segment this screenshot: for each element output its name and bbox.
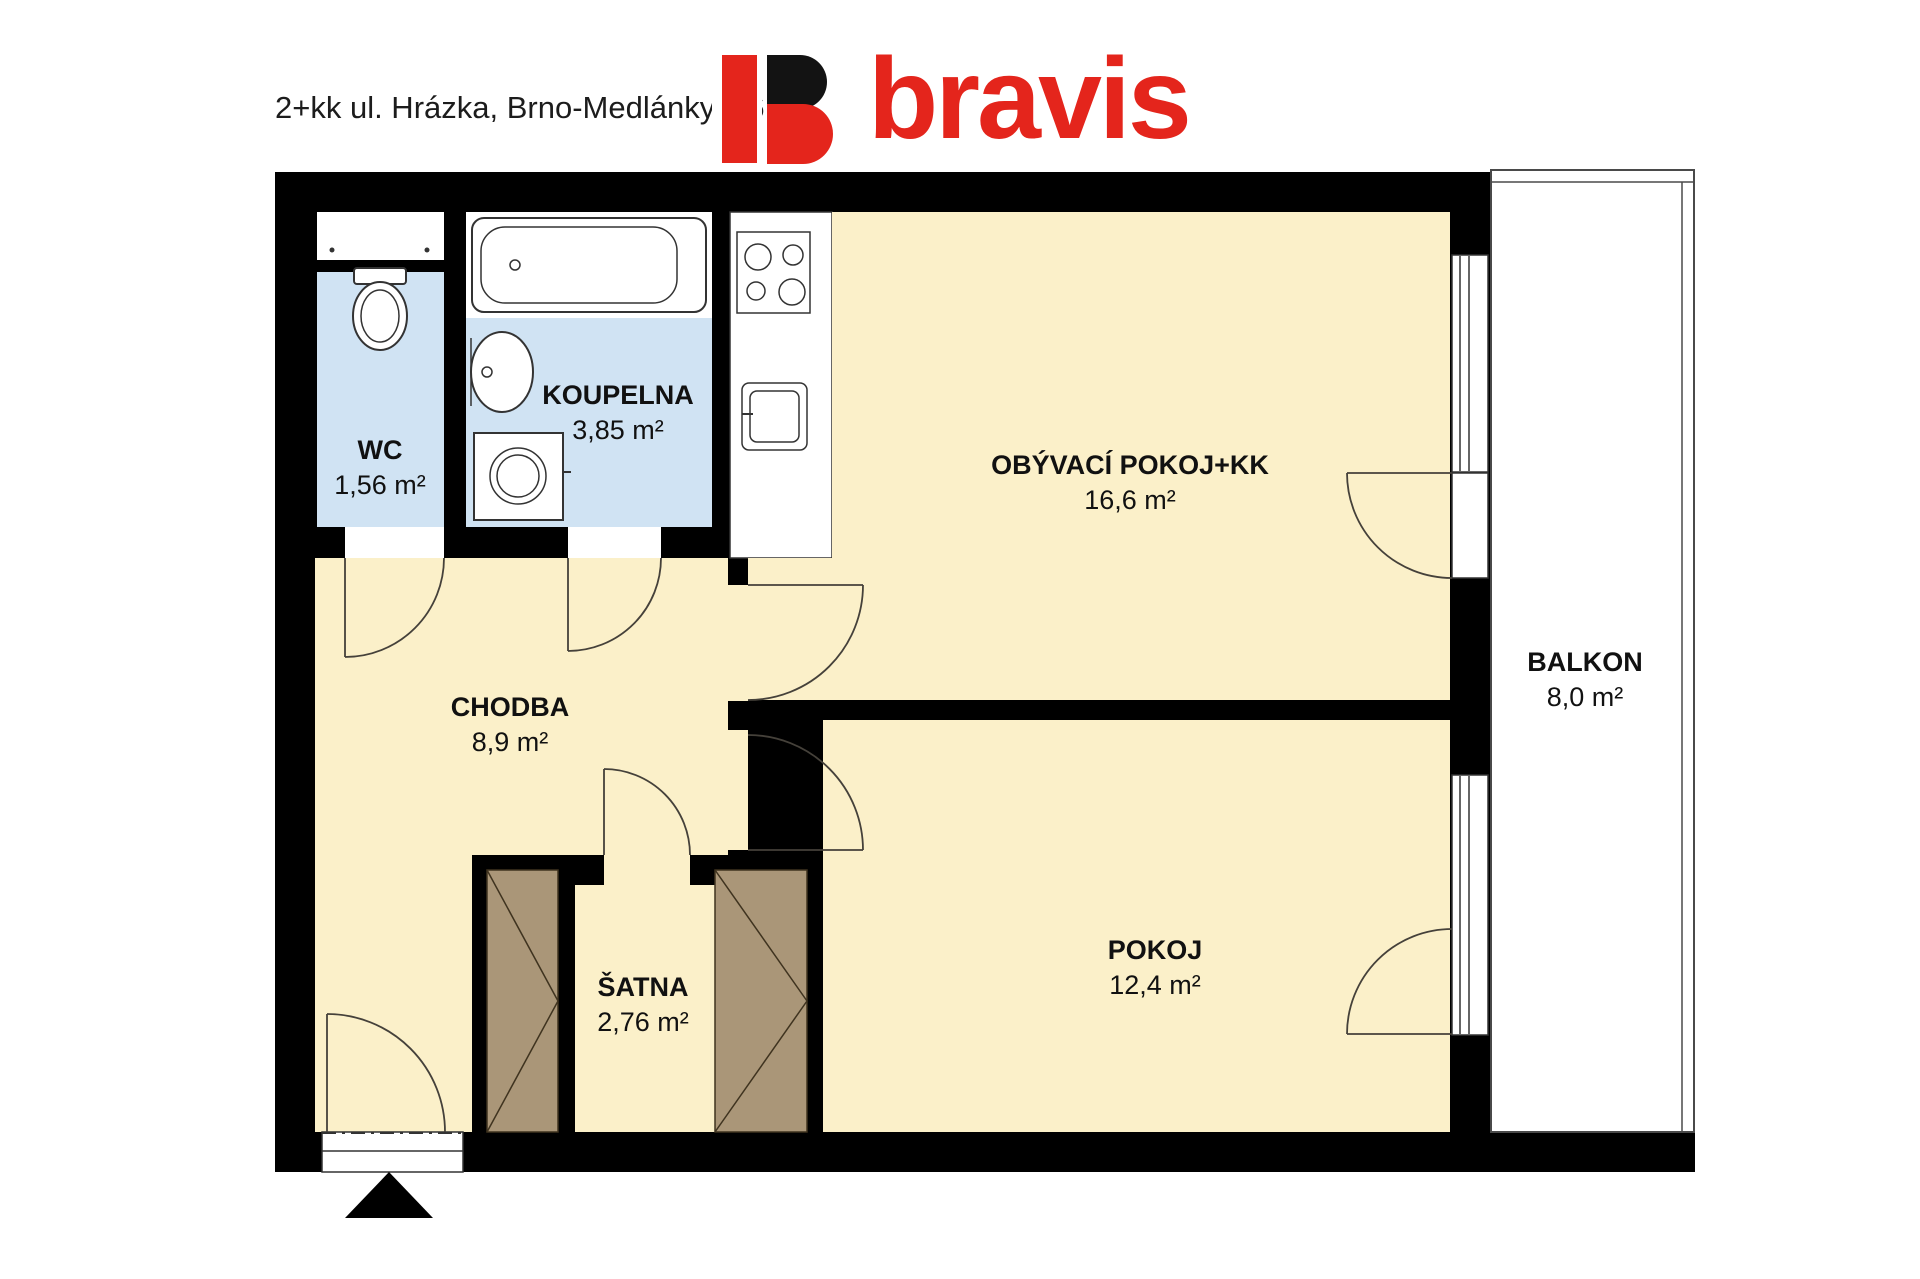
washbasin-icon xyxy=(471,332,533,412)
room-label-koupelna: KOUPELNA 3,85 m² xyxy=(542,378,694,448)
room-label-satna: ŠATNA 2,76 m² xyxy=(597,970,689,1040)
room-label-pokoj: POKOJ 12,4 m² xyxy=(1108,933,1203,1003)
logo-b-bar xyxy=(722,55,757,163)
kitchen-sink-icon xyxy=(742,383,807,450)
stove-icon xyxy=(737,232,810,313)
room-label-wc: WC 1,56 m² xyxy=(334,433,426,503)
logo-wordmark: bravis xyxy=(868,42,1189,157)
wardrobe-icon xyxy=(715,870,807,1132)
room-label-obyvaci-pokoj: OBÝVACÍ POKOJ+KK 16,6 m² xyxy=(991,448,1269,518)
entrance-arrow-icon xyxy=(345,1172,433,1218)
room-label-chodba: CHODBA 8,9 m² xyxy=(451,690,570,760)
bathtub-icon xyxy=(466,212,712,318)
wardrobe-icon xyxy=(487,870,558,1132)
pokoj-floor xyxy=(823,720,1450,1132)
logo-b-bottom-bowl xyxy=(767,104,833,164)
pokoj-window xyxy=(1452,775,1488,1035)
wc-door-gap xyxy=(345,527,444,558)
wc-cabinet xyxy=(317,212,444,260)
toilet-icon xyxy=(353,268,407,350)
logo-b-top-bowl xyxy=(767,55,827,109)
koupelna-door-gap xyxy=(568,527,661,558)
living-window xyxy=(1452,255,1488,472)
room-label-balkon: BALKON 8,0 m² xyxy=(1527,645,1643,715)
floorplan: WC 1,56 m² KOUPELNA 3,85 m² OBÝVACÍ POKO… xyxy=(275,168,1725,1228)
entrance-threshold xyxy=(322,1132,463,1172)
living-balcony-door-gap xyxy=(1452,473,1488,578)
